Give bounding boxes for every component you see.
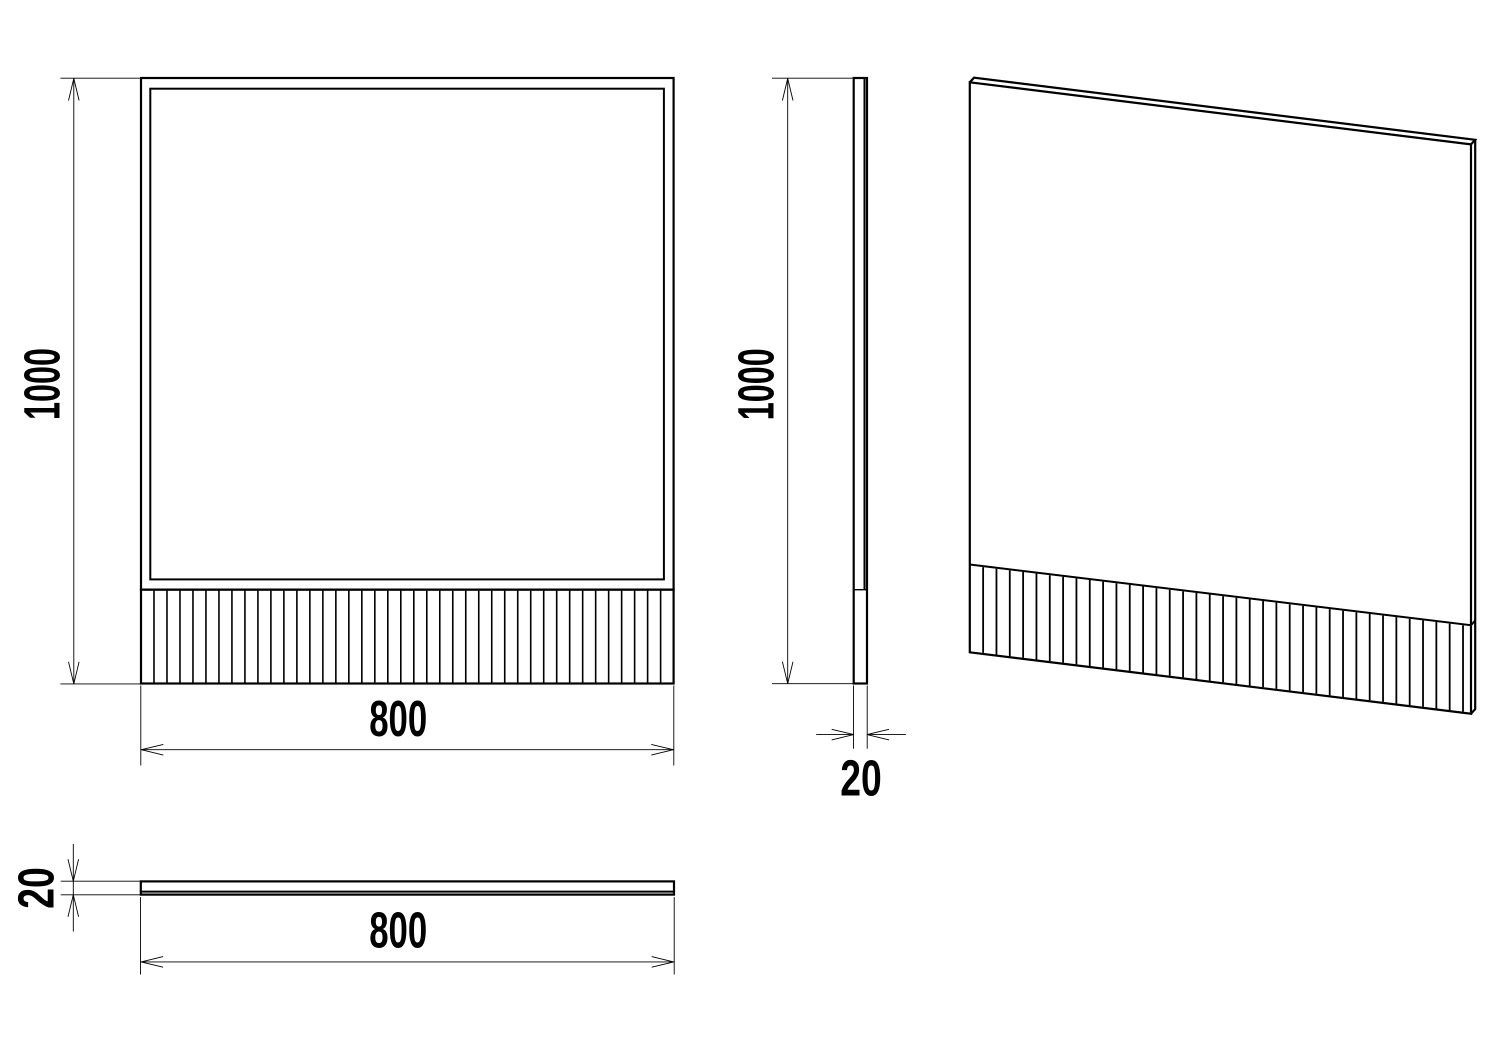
- svg-text:1000: 1000: [13, 348, 70, 420]
- svg-text:20: 20: [8, 867, 65, 909]
- svg-text:1000: 1000: [727, 348, 784, 420]
- svg-text:20: 20: [840, 749, 882, 806]
- svg-text:800: 800: [369, 902, 427, 959]
- svg-text:800: 800: [369, 690, 427, 747]
